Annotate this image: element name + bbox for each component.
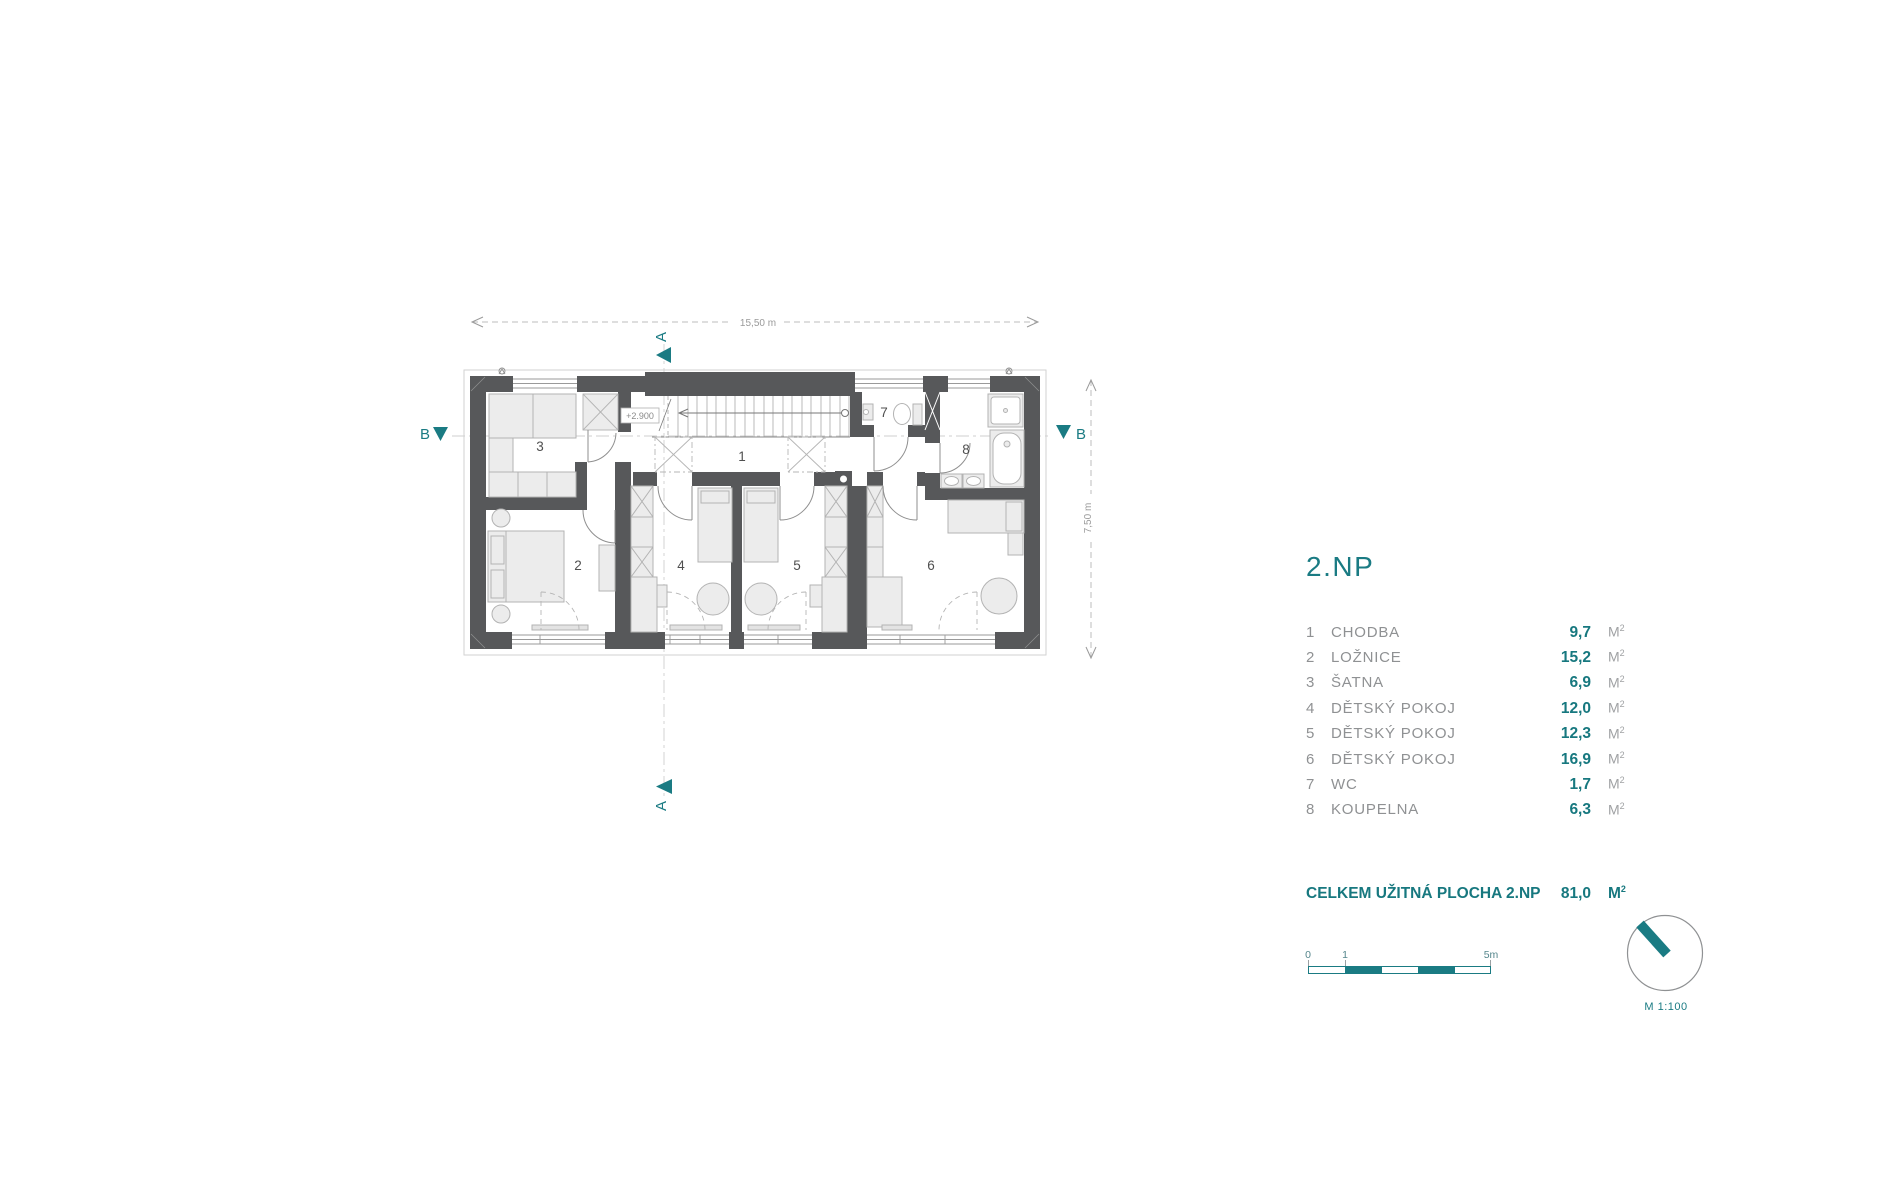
desk bbox=[822, 577, 847, 632]
furniture bbox=[488, 394, 1024, 632]
room-label-1: 1 bbox=[738, 449, 746, 464]
floor-plan: 1 2 3 4 5 6 7 8 +2.900 15,50 m bbox=[410, 290, 1110, 830]
svg-text:7,50 m: 7,50 m bbox=[1083, 503, 1094, 534]
room-label-6: 6 bbox=[927, 558, 935, 573]
room-label-3: 3 bbox=[536, 439, 544, 454]
legend-total: CELKEM UŽITNÁ PLOCHA 2.NP 81,0 M2 bbox=[1306, 884, 1640, 903]
legend-room-name: CHODBA bbox=[1331, 624, 1400, 641]
chair bbox=[745, 583, 777, 615]
room-label-8: 8 bbox=[962, 442, 970, 457]
section-marker-a-top: A bbox=[653, 332, 671, 363]
chair bbox=[697, 583, 729, 615]
legend-room-number: 1 bbox=[1306, 624, 1322, 641]
drawing-scale-label: M 1:100 bbox=[1626, 1001, 1706, 1013]
level-marker: +2.900 bbox=[621, 408, 659, 423]
room-legend: 1 CHODBA 9,7 M2 2 LOŽNICE 15,2 M2 3 ŠATN… bbox=[1306, 623, 1640, 826]
dimension-height: 7,50 m bbox=[1083, 380, 1096, 658]
section-marker-a-bottom: A bbox=[653, 779, 672, 811]
svg-text:B: B bbox=[420, 426, 430, 443]
desk bbox=[631, 577, 657, 632]
svg-text:A: A bbox=[653, 332, 670, 342]
legend-room-area: 9,7 bbox=[1543, 624, 1591, 642]
room-label-4: 4 bbox=[677, 558, 685, 573]
toilet-bowl bbox=[894, 404, 911, 425]
section-arrow-icon bbox=[1056, 425, 1071, 439]
dresser bbox=[599, 545, 615, 591]
dresser bbox=[1008, 533, 1023, 555]
toilet-tank bbox=[913, 404, 922, 425]
dimension-width: 15,50 m bbox=[472, 317, 1038, 329]
stairs bbox=[652, 396, 850, 437]
nightstand bbox=[492, 605, 510, 623]
svg-text:A: A bbox=[653, 801, 670, 811]
room-label-5: 5 bbox=[793, 558, 801, 573]
chair bbox=[981, 578, 1017, 614]
room-label-2: 2 bbox=[574, 558, 582, 573]
svg-text:+2.900: +2.900 bbox=[626, 411, 654, 421]
svg-text:B: B bbox=[1076, 426, 1086, 443]
legend-row: 1 CHODBA 9,7 M2 bbox=[1306, 623, 1640, 648]
section-marker-b-right: B bbox=[1056, 425, 1086, 443]
scale-bar bbox=[1308, 966, 1491, 974]
drawing-sheet: 1 2 3 4 5 6 7 8 +2.900 15,50 m bbox=[0, 0, 1904, 1200]
svg-text:15,50 m: 15,50 m bbox=[740, 318, 776, 329]
section-arrow-icon bbox=[656, 347, 671, 363]
desk bbox=[867, 577, 902, 627]
legend-row: 8 KOUPELNA 6,3 M2 bbox=[1306, 801, 1640, 826]
section-marker-b-left: B bbox=[420, 426, 448, 443]
north-indicator bbox=[1620, 908, 1712, 1000]
legend-row: 5 DĚTSKÝ POKOJ 12,3 M2 bbox=[1306, 725, 1640, 750]
section-arrow-icon bbox=[433, 427, 448, 441]
legend-row: 3 ŠATNA 6,9 M2 bbox=[1306, 674, 1640, 699]
scalebar-label-5m: 5m bbox=[1479, 949, 1503, 961]
legend-row: 4 DĚTSKÝ POKOJ 12,0 M2 bbox=[1306, 699, 1640, 724]
legend-total-area: 81,0 bbox=[1543, 885, 1591, 903]
room-label-7: 7 bbox=[880, 405, 888, 420]
nightstand bbox=[492, 509, 510, 527]
legend-row: 2 LOŽNICE 15,2 M2 bbox=[1306, 648, 1640, 673]
legend-row: 6 DĚTSKÝ POKOJ 16,9 M2 bbox=[1306, 750, 1640, 775]
legend-row: 7 WC 1,7 M2 bbox=[1306, 775, 1640, 800]
page-title: 2.NP bbox=[1306, 551, 1374, 583]
legend-total-unit: M2 bbox=[1608, 884, 1640, 903]
legend-unit: M2 bbox=[1608, 623, 1640, 640]
legend-total-label: CELKEM UŽITNÁ PLOCHA 2.NP bbox=[1306, 885, 1541, 903]
